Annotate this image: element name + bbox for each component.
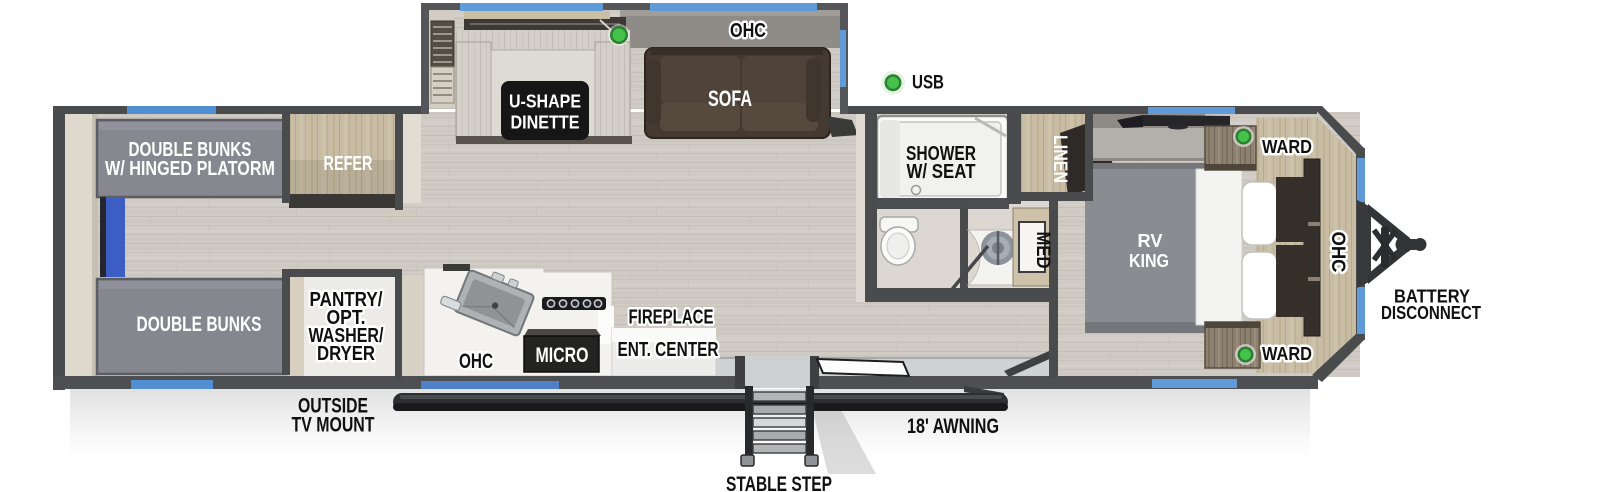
svg-text:WARD: WARD <box>1262 344 1312 364</box>
svg-text:REFER: REFER <box>324 153 373 175</box>
svg-text:RV: RV <box>1138 231 1163 251</box>
svg-text:DINETTE: DINETTE <box>511 113 580 133</box>
svg-text:LINEN: LINEN <box>1049 135 1070 183</box>
svg-text:ENT. CENTER: ENT. CENTER <box>618 339 719 361</box>
svg-text:WARD: WARD <box>1262 137 1312 157</box>
svg-text:W/ SEAT: W/ SEAT <box>907 161 976 183</box>
svg-text:STABLE STEP: STABLE STEP <box>726 473 832 492</box>
svg-text:OHC: OHC <box>459 350 493 373</box>
svg-text:SOFA: SOFA <box>708 86 752 111</box>
svg-text:OHC: OHC <box>1327 232 1348 273</box>
svg-text:USB: USB <box>912 73 944 94</box>
svg-text:MED: MED <box>1032 232 1053 269</box>
svg-text:U-SHAPE: U-SHAPE <box>509 92 581 112</box>
svg-text:18' AWNING: 18' AWNING <box>907 415 999 438</box>
svg-text:OHC: OHC <box>730 20 766 42</box>
svg-text:W/ HINGED PLATORM: W/ HINGED PLATORM <box>105 158 275 180</box>
svg-text:FIREPLACE: FIREPLACE <box>629 307 714 329</box>
svg-text:DOUBLE BUNKS: DOUBLE BUNKS <box>137 313 262 336</box>
svg-text:DISCONNECT: DISCONNECT <box>1381 303 1481 323</box>
svg-text:MICRO: MICRO <box>536 344 589 367</box>
svg-text:DRYER: DRYER <box>317 343 375 365</box>
svg-text:TV MOUNT: TV MOUNT <box>292 414 375 437</box>
svg-text:KING: KING <box>1129 251 1169 271</box>
